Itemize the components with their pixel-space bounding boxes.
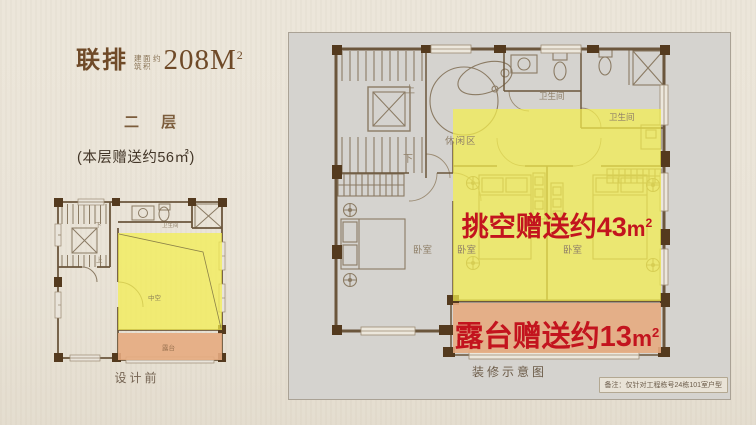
bedroom-right-label: 卧室 — [563, 244, 582, 256]
terrace-bonus-value: 露台赠送约13 — [455, 321, 632, 353]
floor-bonus-note: (本层赠送约56㎡) — [77, 146, 195, 167]
small-void-label: 中空 — [148, 293, 162, 302]
plan-title: 联排 建筑 面积 约 208M 2 — [76, 48, 243, 73]
void-bonus-value: 挑空赠送约43 — [462, 212, 627, 242]
leisure-area-label: 休闲区 — [445, 135, 477, 147]
small-bath-label: 卫生间 — [162, 221, 179, 229]
up-label: 上 — [405, 84, 415, 96]
area-note: 建筑 面积 约 — [134, 55, 161, 71]
bedroom-mid-label: 卧室 — [457, 244, 476, 256]
area-note-suffix: 约 — [153, 55, 161, 63]
terrace-bonus-sup: 2 — [652, 325, 659, 340]
product-type-label: 联排 — [76, 49, 128, 73]
down-label: 下 — [403, 154, 413, 165]
small-plan: 下 上 卫生间 中空 露台 设计前 — [52, 192, 237, 388]
area-note-col2: 面积 — [143, 55, 152, 71]
small-up-label: 上 — [96, 255, 103, 264]
bathroom-top-label: 卫生间 — [539, 91, 565, 101]
void-bonus-sup: 2 — [646, 216, 653, 230]
area-note-col1: 建筑 — [134, 55, 143, 71]
small-plan-drawing: 下 上 卫生间 中空 露台 — [52, 192, 237, 364]
bedroom-left-label: 卧室 — [413, 244, 432, 256]
main-plan-panel: 上 下 休闲区 卫生间 卫生间 卧室 卧室 卧室 挑空赠送约43m2 露台赠送约… — [288, 32, 731, 400]
void-bonus-unit: m — [627, 218, 646, 241]
flyer-background: 联排 建筑 面积 约 208M 2 二 层 (本层赠送约56㎡) — [0, 0, 756, 425]
bed-left — [341, 219, 405, 269]
wardrobe-left — [338, 174, 404, 196]
disclaimer-note: 备注：仅针对工程栋号24栋101室户型 — [599, 377, 728, 393]
bathroom-right-label: 卫生间 — [609, 112, 635, 122]
terrace-bonus-text: 露台赠送约13m2 — [453, 313, 661, 355]
void-bonus-text: 挑空赠送约43m2 — [453, 205, 661, 244]
small-void-highlight — [118, 233, 222, 330]
area-superscript: 2 — [237, 49, 243, 61]
terrace-bonus-unit: m — [632, 326, 652, 351]
small-down-label: 下 — [95, 221, 102, 229]
small-plan-caption: 设计前 — [52, 369, 222, 386]
small-terrace-label: 露台 — [162, 343, 175, 352]
floor-label: 二 层 — [124, 111, 185, 132]
area-value: 208M — [164, 48, 237, 73]
